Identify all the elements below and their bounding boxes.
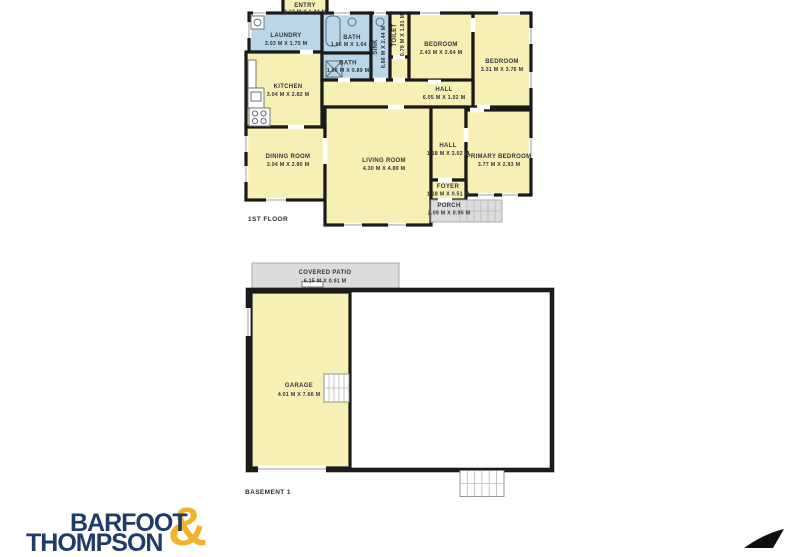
- label-covered-patio: COVERED PATIO: [299, 270, 352, 276]
- kitchen-sink-icon: [248, 88, 264, 108]
- label-laundry: LAUNDRY: [270, 33, 301, 39]
- dims-hall: 6.05 M X 1.02 M: [423, 95, 466, 101]
- label-primary: PRIMARY BEDROOM: [467, 154, 532, 160]
- room-bath-lower: [322, 53, 371, 80]
- dims-bedroom2: 3.31 M X 3.76 M: [481, 67, 524, 73]
- north-arrow-icon: [744, 529, 784, 548]
- room-hall: [322, 80, 473, 107]
- dims-sink: 0.86 M X 2.44 M: [381, 25, 387, 68]
- dims-kitchen: 3.04 M X 2.82 M: [267, 92, 310, 98]
- label-kitchen: KITCHEN: [274, 84, 303, 90]
- first-floor-plan: ENTRY 2.12 M X 1.44 M LAUNDRY 3.03 M X 1…: [244, 0, 534, 227]
- dims-bath-lower: 1.66 M X 0.89 M: [327, 68, 370, 74]
- label-hall: HALL: [435, 87, 452, 93]
- label-dining: DINING ROOM: [266, 154, 311, 160]
- dims-toilet: 0.79 M X 1.81 M: [400, 13, 406, 56]
- dims-covered-patio: 6.15 M X 0.91 M: [304, 279, 347, 285]
- first-floor-label: 1ST FLOOR: [248, 216, 288, 223]
- label-living: LIVING ROOM: [362, 158, 406, 164]
- dims-living: 4.30 M X 4.89 M: [363, 166, 406, 172]
- dims-primary: 3.77 M X 2.93 M: [478, 162, 521, 168]
- label-bedroom2: BEDROOM: [485, 59, 518, 65]
- kitchen-counter: [248, 60, 256, 88]
- label-foyer: FOYER: [437, 184, 460, 190]
- barfoot-thompson-logo: & BARFOOT THOMPSON: [0, 0, 260, 60]
- label-bath-lower: BATH: [339, 61, 356, 67]
- basement-label: BASEMENT 1: [245, 489, 291, 496]
- dims-foyer: 1.18 M X 0.51 M: [427, 192, 470, 198]
- label-bath-top: BATH: [343, 35, 360, 41]
- basement-plan: COVERED PATIO 6.15 M X 0.91 M GARAGE 4.0…: [245, 263, 552, 497]
- label-garage: GARAGE: [285, 383, 313, 389]
- label-hall2: HALL: [439, 143, 456, 149]
- dims-porch: 2.09 M X 0.95 M: [428, 211, 471, 217]
- label-porch: PORCH: [437, 203, 460, 209]
- dims-bath-top: 1.66 M X 1.64 M: [331, 42, 374, 48]
- dims-bedroom1: 2.43 M X 2.64 M: [420, 50, 463, 56]
- dims-entry: 2.12 M X 1.44 M: [284, 10, 327, 16]
- label-entry: ENTRY: [294, 3, 316, 9]
- label-bedroom1: BEDROOM: [424, 42, 457, 48]
- logo-line2: THOMPSON: [26, 531, 162, 556]
- label-toilet: TOILET: [392, 23, 398, 46]
- dims-hall2: 1.18 M X 3.02 M: [427, 151, 470, 157]
- dims-garage: 4.01 M X 7.66 M: [278, 392, 321, 398]
- hall-alcove: [390, 57, 409, 80]
- dims-dining: 3.04 M X 2.80 M: [267, 162, 310, 168]
- dims-laundry: 3.03 M X 1.75 M: [265, 41, 308, 47]
- exterior-stairs: [460, 471, 504, 497]
- stove-icon: [249, 108, 270, 126]
- floor-plan-canvas: ENTRY 2.12 M X 1.44 M LAUNDRY 3.03 M X 1…: [0, 0, 800, 548]
- room-primary: [466, 110, 531, 195]
- garage-stairs: [324, 374, 349, 402]
- label-sink: SINK: [373, 39, 379, 55]
